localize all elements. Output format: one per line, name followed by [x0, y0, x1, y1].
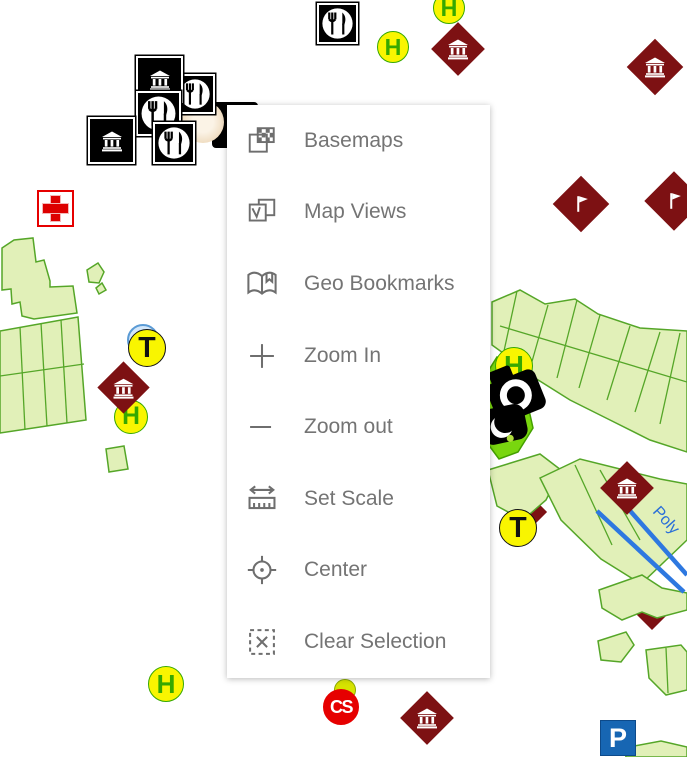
menu-item-geo-bookmarks[interactable]: Geo Bookmarks [227, 248, 490, 320]
menu-item-map-views[interactable]: Map Views [227, 177, 490, 249]
restaurant-poi-icon[interactable] [153, 122, 195, 164]
bus-stop-h-icon[interactable]: H [148, 666, 184, 702]
menu-item-center[interactable]: Center [227, 535, 490, 607]
hospital-cross-icon[interactable] [37, 190, 74, 227]
menu-item-clear-selection[interactable]: Clear Selection [227, 606, 490, 678]
center-crosshair-icon [244, 552, 280, 588]
menu-item-zoom-in[interactable]: Zoom In [227, 320, 490, 392]
zoom-out-icon [244, 409, 280, 445]
map-polygon-left-bit-b [96, 283, 106, 294]
map-polygon-small-rect [106, 446, 128, 472]
set-scale-icon [244, 481, 280, 517]
map-canvas[interactable]: Poly HH TH H [0, 0, 687, 757]
bus-stop-h-icon[interactable]: H [377, 31, 409, 63]
menu-label: Clear Selection [304, 630, 446, 654]
cs-poi-icon[interactable]: CS [323, 689, 359, 725]
map-polygon-left-band [0, 317, 86, 433]
map-context-menu: Basemaps Map Views Geo Bookmarks [227, 105, 490, 678]
clear-selection-icon [244, 624, 280, 660]
basemaps-icon [244, 123, 280, 159]
menu-item-basemaps[interactable]: Basemaps [227, 105, 490, 177]
tram-t-icon[interactable]: T [128, 329, 166, 367]
geo-bookmarks-icon [244, 266, 280, 302]
menu-label: Geo Bookmarks [304, 272, 455, 296]
menu-item-set-scale[interactable]: Set Scale [227, 463, 490, 535]
menu-label: Zoom In [304, 344, 381, 368]
map-polygon-left-bit-a [87, 263, 104, 283]
map-views-icon [244, 194, 280, 230]
menu-item-zoom-out[interactable]: Zoom out [227, 391, 490, 463]
menu-label: Zoom out [304, 415, 393, 439]
restaurant-poi-icon[interactable] [317, 3, 358, 44]
menu-label: Set Scale [304, 487, 394, 511]
menu-label: Center [304, 558, 367, 582]
tram-t-icon[interactable]: T [499, 509, 537, 547]
menu-label: Map Views [304, 200, 406, 224]
zoom-in-icon [244, 338, 280, 374]
map-polygon-left-block-a [2, 238, 77, 319]
parking-poi-icon[interactable]: P [600, 720, 636, 756]
map-polygon-lower-right-curve [598, 632, 634, 662]
museum-poi-icon[interactable] [88, 117, 135, 164]
menu-label: Basemaps [304, 129, 403, 153]
